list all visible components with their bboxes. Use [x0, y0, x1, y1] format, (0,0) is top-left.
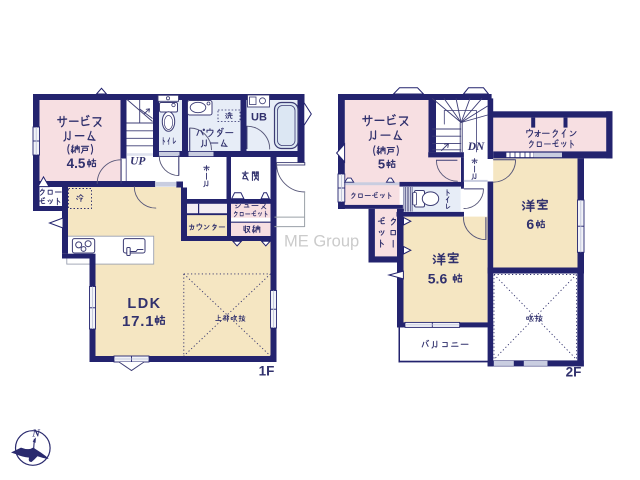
- svg-text:UB: UB: [251, 111, 267, 123]
- svg-text:2F: 2F: [566, 365, 582, 380]
- svg-text:ME Group: ME Group: [284, 233, 359, 251]
- svg-text:5: 5: [378, 157, 385, 172]
- svg-text:UP: UP: [130, 155, 146, 167]
- svg-text:5.6: 5.6: [428, 270, 448, 286]
- svg-text:DN: DN: [467, 141, 485, 153]
- svg-text:17.1: 17.1: [122, 313, 154, 330]
- svg-text:LDK: LDK: [127, 296, 161, 312]
- svg-text:1F: 1F: [259, 364, 275, 379]
- svg-text:6: 6: [526, 216, 534, 232]
- svg-text:4.5: 4.5: [67, 156, 86, 171]
- svg-text:N: N: [31, 428, 40, 439]
